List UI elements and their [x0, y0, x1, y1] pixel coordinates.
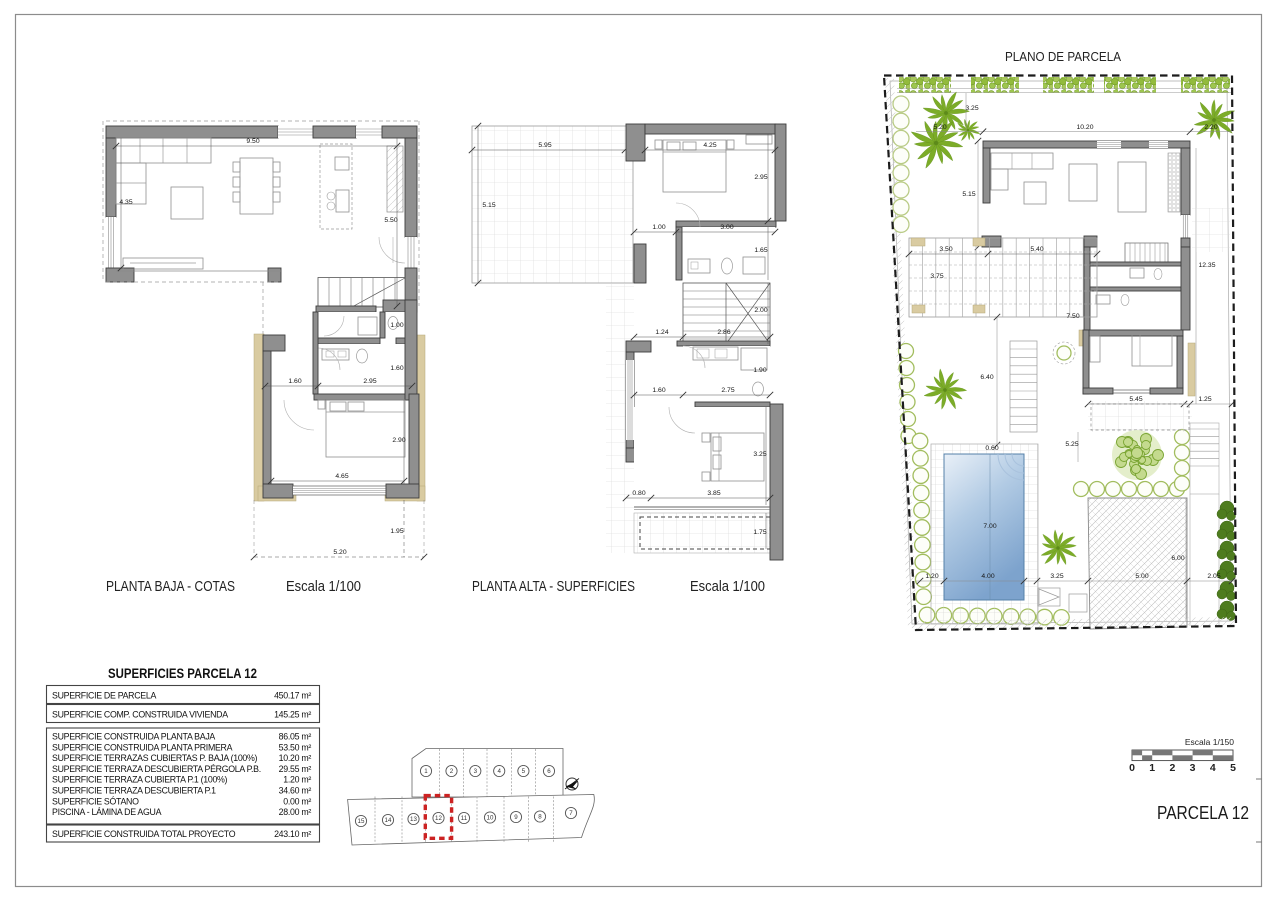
- svg-text:0.80: 0.80: [632, 490, 645, 497]
- svg-text:450.17 m²: 450.17 m²: [274, 691, 311, 701]
- svg-text:2.20: 2.20: [1204, 124, 1217, 131]
- svg-text:3.00: 3.00: [720, 224, 733, 231]
- svg-text:SUPERFICIE CONSTRUIDA PLANTA P: SUPERFICIE CONSTRUIDA PLANTA PRIMERA: [52, 742, 233, 752]
- svg-text:28.00 m²: 28.00 m²: [279, 807, 312, 817]
- svg-text:29.55 m²: 29.55 m²: [279, 764, 312, 774]
- svg-text:13: 13: [410, 816, 417, 823]
- svg-text:4.65: 4.65: [335, 473, 348, 480]
- svg-text:1.60: 1.60: [390, 365, 403, 372]
- svg-text:7.50: 7.50: [1066, 313, 1079, 320]
- svg-text:1.60: 1.60: [652, 387, 665, 394]
- svg-text:Escala 1/100: Escala 1/100: [286, 579, 361, 595]
- svg-text:SUPERFICIES PARCELA 12: SUPERFICIES PARCELA 12: [108, 666, 257, 681]
- svg-text:2.86: 2.86: [717, 329, 730, 336]
- svg-text:5.15: 5.15: [482, 202, 495, 209]
- svg-text:10: 10: [487, 815, 494, 822]
- svg-text:2: 2: [1169, 762, 1175, 774]
- svg-text:1.00: 1.00: [652, 224, 665, 231]
- svg-text:5: 5: [522, 768, 526, 775]
- svg-text:3.25: 3.25: [753, 451, 766, 458]
- svg-text:0.00 m²: 0.00 m²: [283, 796, 311, 806]
- svg-text:5.20: 5.20: [333, 549, 346, 556]
- svg-text:0.60: 0.60: [985, 445, 998, 452]
- svg-text:SUPERFICIE TERRAZAS CUBIERTAS: SUPERFICIE TERRAZAS CUBIERTAS P. BAJA (1…: [52, 753, 258, 763]
- svg-text:10.20 m²: 10.20 m²: [279, 753, 312, 763]
- svg-text:1.24: 1.24: [655, 329, 668, 336]
- svg-text:10.20: 10.20: [1076, 124, 1093, 131]
- svg-text:5.50: 5.50: [384, 217, 397, 224]
- svg-text:SUPERFICIE CONSTRUIDA PLANTA B: SUPERFICIE CONSTRUIDA PLANTA BAJA: [52, 732, 215, 742]
- svg-text:5.20: 5.20: [933, 124, 946, 131]
- svg-text:3: 3: [474, 768, 478, 775]
- svg-text:PLANO DE PARCELA: PLANO DE PARCELA: [1005, 49, 1121, 64]
- svg-text:SUPERFICIE TERRAZA DESCUBIERTA: SUPERFICIE TERRAZA DESCUBIERTA P.1: [52, 786, 216, 796]
- svg-text:4.25: 4.25: [703, 142, 716, 149]
- svg-text:7.00: 7.00: [983, 523, 996, 530]
- svg-text:1.65: 1.65: [754, 247, 767, 254]
- svg-text:12.35: 12.35: [1198, 262, 1215, 269]
- svg-text:5.40: 5.40: [1030, 246, 1043, 253]
- svg-text:2: 2: [450, 768, 454, 775]
- svg-text:6: 6: [547, 768, 551, 775]
- svg-text:1.20: 1.20: [925, 573, 938, 580]
- svg-text:5: 5: [1230, 762, 1236, 774]
- svg-text:1.90: 1.90: [753, 367, 766, 374]
- svg-text:1.75: 1.75: [753, 529, 766, 536]
- svg-text:2.90: 2.90: [392, 437, 405, 444]
- svg-text:9.50: 9.50: [246, 138, 259, 145]
- svg-text:3.50: 3.50: [939, 246, 952, 253]
- svg-text:5.15: 5.15: [962, 191, 975, 198]
- svg-text:3: 3: [1190, 762, 1196, 774]
- svg-text:SUPERFICIE DE PARCELA: SUPERFICIE DE PARCELA: [52, 691, 156, 701]
- svg-text:SUPERFICIE COMP. CONSTRUIDA VI: SUPERFICIE COMP. CONSTRUIDA VIVIENDA: [52, 710, 228, 720]
- svg-text:1: 1: [424, 768, 428, 775]
- svg-text:PARCELA 12: PARCELA 12: [1157, 802, 1249, 823]
- svg-text:1.95: 1.95: [390, 528, 403, 535]
- svg-text:1.20 m²: 1.20 m²: [283, 775, 311, 785]
- svg-text:PLANTA BAJA - COTAS: PLANTA BAJA - COTAS: [106, 579, 235, 595]
- svg-text:3.75: 3.75: [930, 273, 943, 280]
- svg-text:4.00: 4.00: [981, 573, 994, 580]
- svg-text:1.00: 1.00: [390, 322, 403, 329]
- svg-text:1.25: 1.25: [1198, 396, 1211, 403]
- svg-text:6.40: 6.40: [980, 374, 993, 381]
- svg-text:11: 11: [461, 815, 468, 822]
- svg-text:5.25: 5.25: [1065, 441, 1078, 448]
- svg-text:53.50 m²: 53.50 m²: [279, 742, 312, 752]
- svg-text:7: 7: [569, 810, 573, 817]
- svg-text:2.95: 2.95: [363, 378, 376, 385]
- svg-text:86.05 m²: 86.05 m²: [279, 732, 312, 742]
- svg-text:2.95: 2.95: [754, 174, 767, 181]
- svg-text:PLANTA ALTA - SUPERFICIES: PLANTA ALTA - SUPERFICIES: [472, 579, 635, 595]
- svg-text:243.10 m²: 243.10 m²: [274, 829, 311, 839]
- svg-text:3.25: 3.25: [965, 105, 978, 112]
- svg-text:5.00: 5.00: [1135, 573, 1148, 580]
- svg-text:14: 14: [385, 817, 392, 824]
- svg-text:SUPERFICIE TERRAZA CUBIERTA P.: SUPERFICIE TERRAZA CUBIERTA P.1 (100%): [52, 775, 228, 785]
- svg-text:0: 0: [1129, 762, 1135, 774]
- svg-text:2.05: 2.05: [1207, 573, 1220, 580]
- svg-text:Escala 1/150: Escala 1/150: [1185, 737, 1234, 747]
- svg-text:4: 4: [497, 768, 501, 775]
- svg-text:2.75: 2.75: [721, 387, 734, 394]
- svg-text:Escala 1/100: Escala 1/100: [690, 579, 765, 595]
- svg-text:4: 4: [1210, 762, 1216, 774]
- svg-text:34.60 m²: 34.60 m²: [279, 786, 312, 796]
- svg-text:SUPERFICIE TERRAZA DESCUBIERTA: SUPERFICIE TERRAZA DESCUBIERTA PÉRGOLA P…: [52, 764, 261, 774]
- svg-text:1.60: 1.60: [288, 378, 301, 385]
- svg-text:3.25: 3.25: [1050, 573, 1063, 580]
- svg-text:5.95: 5.95: [538, 142, 551, 149]
- svg-text:PISCINA - LÁMINA DE AGUA: PISCINA - LÁMINA DE AGUA: [52, 807, 162, 817]
- svg-text:SUPERFICIE CONSTRUIDA TOTAL PR: SUPERFICIE CONSTRUIDA TOTAL PROYECTO: [52, 829, 236, 839]
- svg-text:12: 12: [435, 815, 442, 822]
- svg-text:6.00: 6.00: [1171, 555, 1184, 562]
- svg-text:145.25 m²: 145.25 m²: [274, 710, 311, 720]
- svg-text:SUPERFICIE SÓTANO: SUPERFICIE SÓTANO: [52, 796, 139, 806]
- svg-text:4.35: 4.35: [119, 199, 132, 206]
- svg-text:1: 1: [1149, 762, 1155, 774]
- svg-text:3.85: 3.85: [707, 490, 720, 497]
- svg-text:2.00: 2.00: [754, 307, 767, 314]
- svg-text:9: 9: [514, 814, 518, 821]
- svg-text:15: 15: [358, 818, 365, 825]
- svg-text:8: 8: [538, 814, 542, 821]
